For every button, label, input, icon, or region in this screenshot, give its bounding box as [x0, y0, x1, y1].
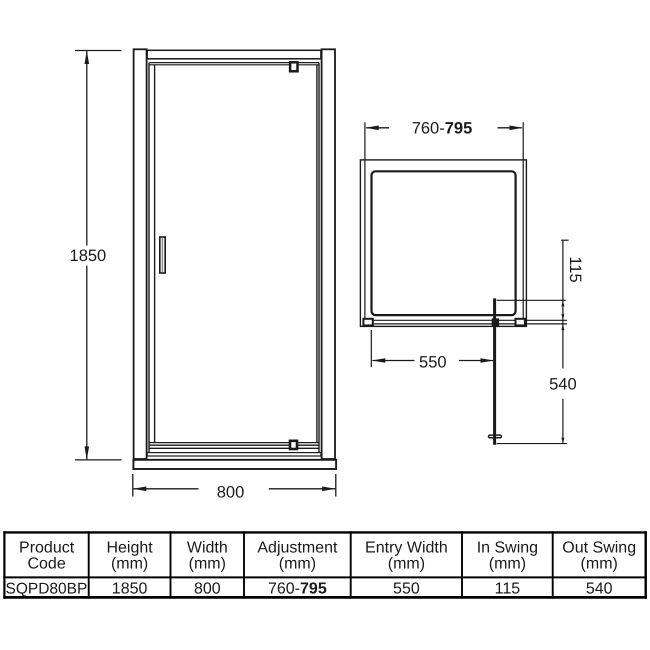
svg-text:Entry Width: Entry Width	[365, 540, 448, 557]
svg-text:Width: Width	[187, 540, 228, 557]
svg-text:800: 800	[217, 484, 245, 502]
svg-text:(mm): (mm)	[388, 555, 425, 572]
svg-text:115: 115	[566, 256, 584, 282]
svg-text:800: 800	[194, 580, 221, 597]
svg-text:SQPD80BP: SQPD80BP	[6, 580, 88, 597]
svg-text:540: 540	[549, 376, 577, 394]
svg-text:(mm): (mm)	[189, 555, 226, 572]
svg-text:(mm): (mm)	[111, 555, 148, 572]
svg-text:Out Swing: Out Swing	[562, 540, 636, 557]
svg-text:Height: Height	[106, 540, 153, 557]
svg-text:In Swing: In Swing	[477, 540, 538, 557]
svg-text:760-795: 760-795	[412, 120, 473, 138]
svg-text:1850: 1850	[70, 247, 107, 265]
svg-text:(mm): (mm)	[581, 555, 618, 572]
svg-text:550: 550	[393, 580, 420, 597]
svg-text:(mm): (mm)	[489, 555, 526, 572]
svg-text:Adjustment: Adjustment	[257, 540, 338, 557]
svg-text:Product: Product	[19, 540, 75, 557]
svg-text:550: 550	[419, 353, 447, 371]
svg-text:(mm): (mm)	[279, 555, 316, 572]
svg-text:540: 540	[586, 580, 613, 597]
svg-text:Code: Code	[27, 555, 65, 572]
svg-text:1850: 1850	[112, 580, 148, 597]
svg-text:760-795: 760-795	[268, 580, 327, 597]
svg-text:115: 115	[495, 580, 521, 597]
